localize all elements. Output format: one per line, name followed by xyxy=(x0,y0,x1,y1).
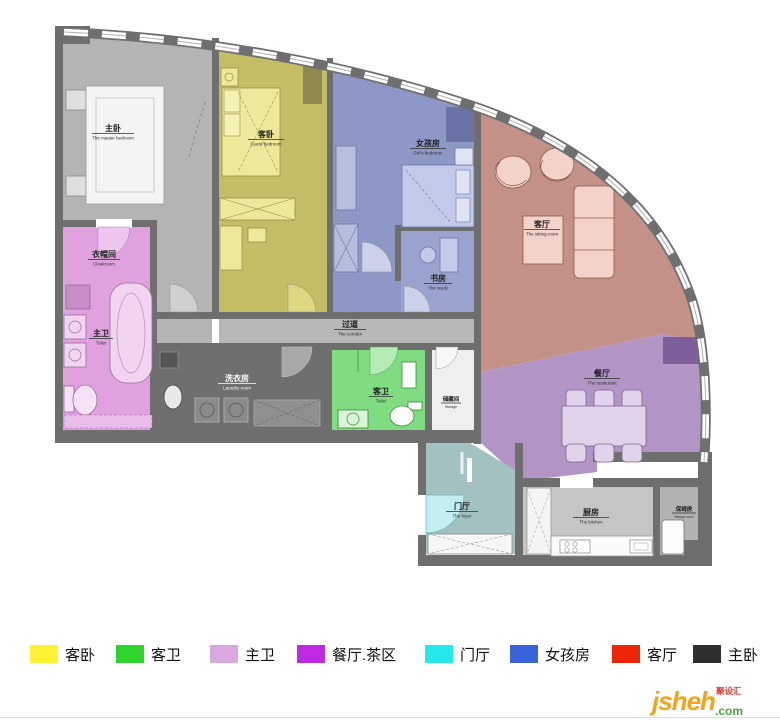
svg-text:The restaurant: The restaurant xyxy=(587,381,617,386)
wall-master-guest xyxy=(212,38,219,318)
wall-laundry-guestbath xyxy=(325,347,332,430)
legend-swatch-guest-bedroom xyxy=(30,645,58,663)
foyer-column xyxy=(467,458,472,482)
svg-text:门厅: 门厅 xyxy=(454,501,470,511)
legend-swatch-foyer xyxy=(425,645,453,663)
svg-text:Laundry room: Laundry room xyxy=(223,386,251,391)
watermark-suffix: .com xyxy=(715,704,743,718)
wall-foyer-kitchen xyxy=(515,443,523,560)
svg-text:主卧: 主卧 xyxy=(105,123,121,133)
wall-foyer-left-upper xyxy=(418,443,426,495)
svg-text:Guest bedroom: Guest bedroom xyxy=(250,142,281,147)
wall-girls-living xyxy=(474,104,481,344)
svg-text:保姆房: 保姆房 xyxy=(675,505,693,513)
wall-bottom-strip xyxy=(418,555,712,566)
legend-label-living-room: 客厅 xyxy=(647,644,677,665)
legend-label-master-bedroom: 主卧 xyxy=(728,644,758,665)
svg-text:书房: 书房 xyxy=(430,273,446,283)
svg-text:过道: 过道 xyxy=(342,319,358,329)
legend-swatch-guest-bath xyxy=(116,645,144,663)
watermark-brand: jsheh xyxy=(650,686,715,716)
svg-text:The kitchen: The kitchen xyxy=(579,520,603,525)
legend-label-guest-bedroom: 客卧 xyxy=(65,644,95,665)
svg-text:储藏间: 储藏间 xyxy=(442,395,460,403)
wall-foyer-left-lower xyxy=(418,535,426,563)
svg-text:Nanny room: Nanny room xyxy=(674,515,693,519)
svg-text:Storage: Storage xyxy=(445,405,457,409)
svg-text:Cloakroom: Cloakroom xyxy=(93,262,115,267)
legend-swatch-living-room xyxy=(612,645,640,663)
svg-text:厨房: 厨房 xyxy=(583,507,599,517)
legend-swatch-dining-tea xyxy=(297,645,325,663)
svg-text:The study: The study xyxy=(428,286,449,291)
girls-room-corner-block xyxy=(446,107,476,142)
legend-item-guest-bedroom: 客卧 xyxy=(30,645,95,663)
wall-guest-girls xyxy=(327,58,333,318)
legend: 客卧 客卫 主卫 餐厅.茶区 门厅 女孩房 客厅 主卧 xyxy=(0,645,780,665)
watermark-tag: 聚设汇 xyxy=(715,686,742,696)
wall-guestbath-storage xyxy=(425,347,432,430)
svg-text:洗衣房: 洗衣房 xyxy=(225,373,249,383)
nanny-appliance xyxy=(662,520,684,554)
legend-item-living-room: 客厅 xyxy=(612,645,677,663)
legend-item-girls-room: 女孩房 xyxy=(510,645,590,663)
site-watermark-logo: jsheh 聚设汇 .com xyxy=(650,682,762,720)
svg-text:The foyer: The foyer xyxy=(452,514,472,519)
svg-text:The corridor: The corridor xyxy=(338,332,363,337)
wall-left-dining xyxy=(474,344,481,444)
floorplan-drawing: 主卧 The master bedroom 客卧 Guest bedroom 女… xyxy=(0,0,780,630)
wall-nanny-corner xyxy=(684,540,712,564)
svg-text:衣帽间: 衣帽间 xyxy=(92,249,116,259)
guest-bedroom-corner-block xyxy=(303,66,322,104)
legend-swatch-girls-room xyxy=(510,645,538,663)
dining-furniture xyxy=(562,390,646,462)
svg-text:主卫: 主卫 xyxy=(93,328,109,338)
dining-corner-block xyxy=(663,337,700,364)
svg-text:The sitting room: The sitting room xyxy=(526,232,559,237)
wall-bedrooms-corridor xyxy=(155,312,481,319)
legend-label-guest-bath: 客卫 xyxy=(151,644,181,665)
wall-left xyxy=(55,30,63,443)
svg-text:女孩房: 女孩房 xyxy=(416,138,440,148)
svg-text:餐厅: 餐厅 xyxy=(593,368,610,378)
legend-swatch-master-bedroom xyxy=(693,645,721,663)
svg-text:客卧: 客卧 xyxy=(257,129,274,139)
legend-label-foyer: 门厅 xyxy=(460,644,490,665)
legend-item-master-bath: 主卫 xyxy=(210,645,275,663)
svg-text:客卫: 客卫 xyxy=(372,386,389,396)
legend-item-guest-bath: 客卫 xyxy=(116,645,181,663)
wall-kitchen-nanny xyxy=(653,486,660,561)
floorplan-page: 主卧 The master bedroom 客卧 Guest bedroom 女… xyxy=(0,0,780,720)
svg-text:Toilet: Toilet xyxy=(96,341,107,346)
bottom-divider xyxy=(0,717,780,718)
svg-text:Girl's bedroom: Girl's bedroom xyxy=(413,151,442,156)
legend-label-master-bath: 主卫 xyxy=(245,644,275,665)
legend-label-girls-room: 女孩房 xyxy=(545,644,590,665)
svg-text:The master bedroom: The master bedroom xyxy=(92,136,134,141)
legend-item-dining-tea: 餐厅.茶区 xyxy=(297,645,396,663)
svg-text:客厅: 客厅 xyxy=(533,219,550,229)
legend-item-foyer: 门厅 xyxy=(425,645,490,663)
wall-corridor-laundry xyxy=(155,343,481,350)
wall-bottom-left-section xyxy=(55,430,481,443)
legend-label-dining-tea: 餐厅.茶区 xyxy=(332,644,396,665)
legend-swatch-master-bath xyxy=(210,645,238,663)
door-gap-kitchen xyxy=(560,478,593,488)
wall-study-left xyxy=(395,231,401,281)
door-gap-masterbath xyxy=(96,219,132,228)
svg-text:Toilet: Toilet xyxy=(376,399,387,404)
wall-kitchen-top xyxy=(520,478,700,487)
legend-item-master-bedroom: 主卧 xyxy=(693,645,758,663)
